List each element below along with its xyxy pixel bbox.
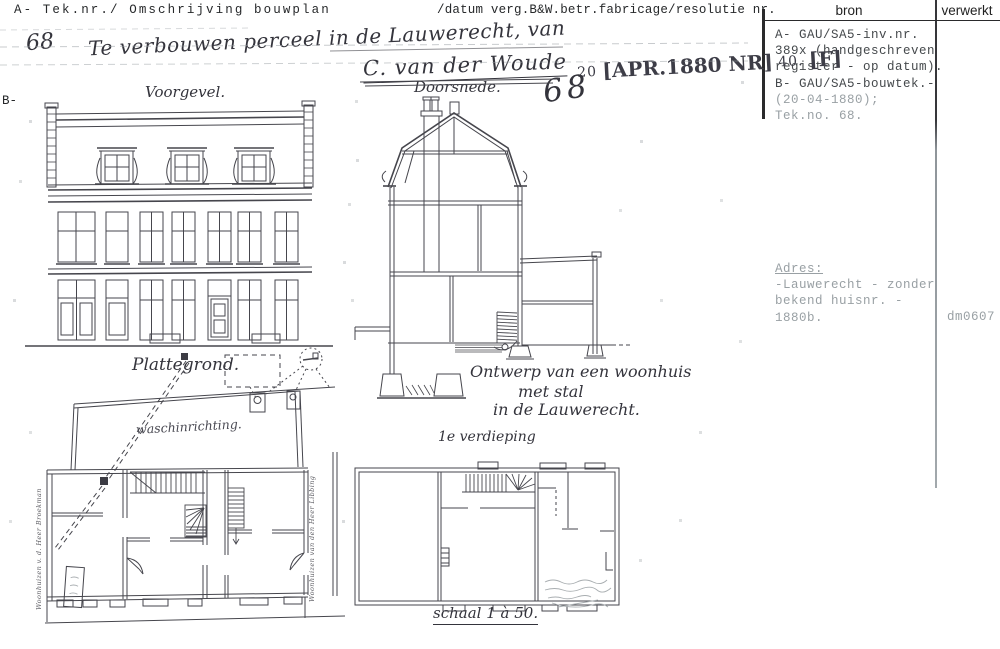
adres-line: -Lauwerecht - zonder [775,277,935,293]
firstfloor-plan [355,462,619,611]
archive-card: A- Tek.nr./ Omschrijving bouwplan /datum… [0,0,1000,649]
section-drawing [355,97,630,398]
lower-openings [58,280,298,343]
dormer [95,148,139,184]
bron-column-header: bron [763,3,935,18]
facade-drawing [25,101,333,346]
approval-scribble [545,580,611,607]
stamp-number: 40. [778,53,804,70]
adres-line: bekend huisnr. - [775,293,935,309]
plan-stair-long [130,472,205,493]
dormer [232,148,276,184]
pencil-guidelines [0,28,748,86]
verwerkt-column-header: verwerkt [936,3,998,18]
drawing-area [0,0,763,649]
annex [520,252,630,358]
privaat-closet [64,566,85,607]
adres-heading: Adres: [775,261,935,277]
upper-stair [462,474,535,492]
panel-header-rule [762,20,1000,21]
bron-entry-line-faint: (20-04-1880); [775,92,943,108]
bron-entry-line-faint: Tek.no. 68. [775,108,943,124]
bron-entry: A- GAU/SA5-inv.nr. 389x (handgeschreven … [775,27,943,124]
bron-entry-line: A- GAU/SA5-inv.nr. [775,27,943,43]
plan-stair-small [228,488,244,544]
bron-entry-line: B- GAU/SA5-bouwtek.- [775,76,943,92]
verwerkt-code: dm0607 [947,310,995,324]
section-stairs [497,312,517,343]
stamp-bracket-letter: [F] [808,46,842,72]
upper-windows [56,212,300,264]
groundfloor-plan [45,348,345,623]
dormer [165,148,209,184]
adres-block: Adres: -Lauwerecht - zonder bekend huisn… [775,261,935,326]
adres-line: 1880b. [775,310,935,326]
